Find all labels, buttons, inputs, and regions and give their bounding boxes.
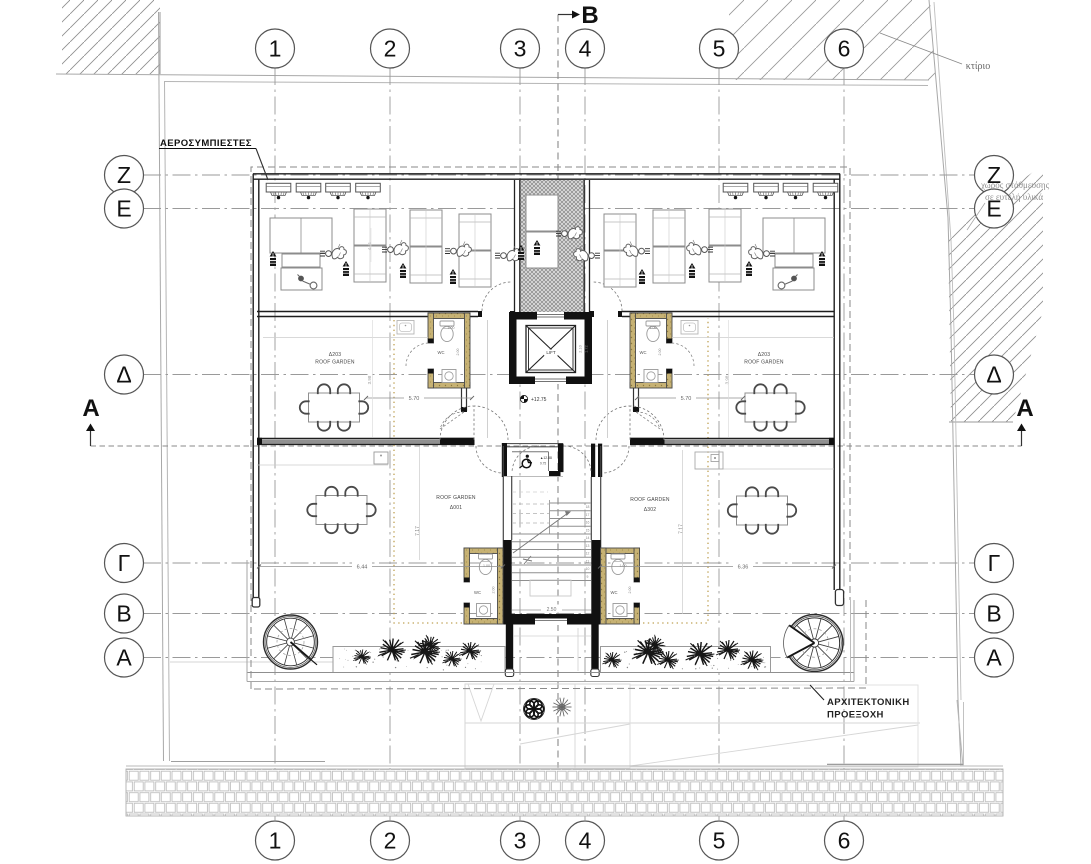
svg-text:1.00: 1.00 [483,564,490,568]
svg-text:11: 11 [586,559,590,563]
svg-text:2.50: 2.50 [547,607,557,613]
svg-text:3.98: 3.98 [367,375,372,384]
svg-text:3: 3 [514,828,527,854]
svg-text:5.70: 5.70 [681,396,692,402]
svg-text:1.00: 1.00 [620,564,627,568]
svg-text:Γ: Γ [988,550,1001,576]
svg-text:Α: Α [986,645,1002,671]
svg-text:2.00: 2.00 [456,349,460,356]
svg-text:6.44: 6.44 [357,564,368,570]
svg-text:Β: Β [986,601,1001,627]
svg-text:ΠΡΟΕΞΟΧΗ: ΠΡΟΕΞΟΧΗ [827,710,884,721]
svg-text:2.00: 2.00 [658,349,662,356]
svg-text:5: 5 [713,36,726,62]
svg-text:Ζ: Ζ [117,162,131,188]
svg-text:Δ: Δ [116,362,131,388]
svg-text:6.36: 6.36 [738,564,749,570]
svg-text:5: 5 [713,828,726,854]
svg-text:9: 9 [587,575,589,579]
svg-text:ROOF GARDEN: ROOF GARDEN [315,360,355,366]
svg-text:A: A [82,395,99,422]
svg-text:6: 6 [838,36,851,62]
svg-text:+12.75: +12.75 [531,397,547,403]
svg-text:9.75: 9.75 [540,462,546,466]
svg-text:Β: Β [116,601,131,627]
svg-text:5.70: 5.70 [409,396,420,402]
svg-text:Δ: Δ [986,362,1001,388]
svg-text:4: 4 [579,828,592,854]
svg-text:1: 1 [269,36,282,62]
svg-text:18: 18 [586,505,590,509]
svg-text:Δ302: Δ302 [644,507,657,513]
svg-text:WC: WC [611,590,618,595]
svg-text:17: 17 [586,513,590,517]
svg-text:2: 2 [384,828,397,854]
svg-text:χώρος στάθμευσης: χώρος στάθμευσης [980,180,1050,190]
svg-text:▲12.88: ▲12.88 [540,456,552,460]
svg-text:4: 4 [579,36,592,62]
svg-text:ΑΕΡΟΣΥΜΠΙΕΣΤΕΣ: ΑΕΡΟΣΥΜΠΙΕΣΤΕΣ [160,138,252,149]
svg-text:14: 14 [586,536,590,540]
svg-text:ROOF GARDEN: ROOF GARDEN [744,360,784,366]
svg-text:3: 3 [514,36,527,62]
svg-text:2.00: 2.00 [628,587,632,594]
svg-text:LIFT: LIFT [546,350,556,355]
svg-text:7.17: 7.17 [679,524,685,534]
svg-text:κτίριο: κτίριο [966,61,990,72]
svg-text:12: 12 [586,552,590,556]
svg-text:Δ203: Δ203 [758,352,771,358]
svg-text:2.00: 2.00 [492,587,496,594]
svg-text:WC: WC [474,590,481,595]
svg-text:2: 2 [384,36,397,62]
svg-text:Δ203: Δ203 [329,352,342,358]
svg-text:WC: WC [640,350,647,355]
svg-text:10: 10 [586,567,590,571]
svg-text:Α: Α [116,645,132,671]
svg-text:1: 1 [269,828,282,854]
svg-text:7.17: 7.17 [415,526,421,536]
svg-text:1.00: 1.00 [448,326,455,330]
svg-text:Δ001: Δ001 [450,505,463,511]
svg-text:6: 6 [838,828,851,854]
svg-text:ROOF GARDEN: ROOF GARDEN [630,497,670,503]
svg-text:13: 13 [586,544,590,548]
svg-text:A: A [1016,395,1033,422]
svg-text:Γ: Γ [118,550,131,576]
svg-text:1.00: 1.00 [650,326,657,330]
svg-text:ΑΡΧΙΤΕΚΤΟΝΙΚΗ: ΑΡΧΙΤΕΚΤΟΝΙΚΗ [827,697,910,708]
svg-text:2.10: 2.10 [579,345,583,352]
svg-text:σε ευτελή υλικά: σε ευτελή υλικά [985,192,1043,202]
svg-text:16: 16 [586,521,590,525]
svg-text:Ε: Ε [116,196,131,222]
svg-text:ROOF GARDEN: ROOF GARDEN [436,495,476,501]
svg-text:B: B [581,2,598,29]
svg-text:WC: WC [438,350,445,355]
svg-text:1.72: 1.72 [585,345,589,352]
svg-text:15: 15 [586,528,590,532]
